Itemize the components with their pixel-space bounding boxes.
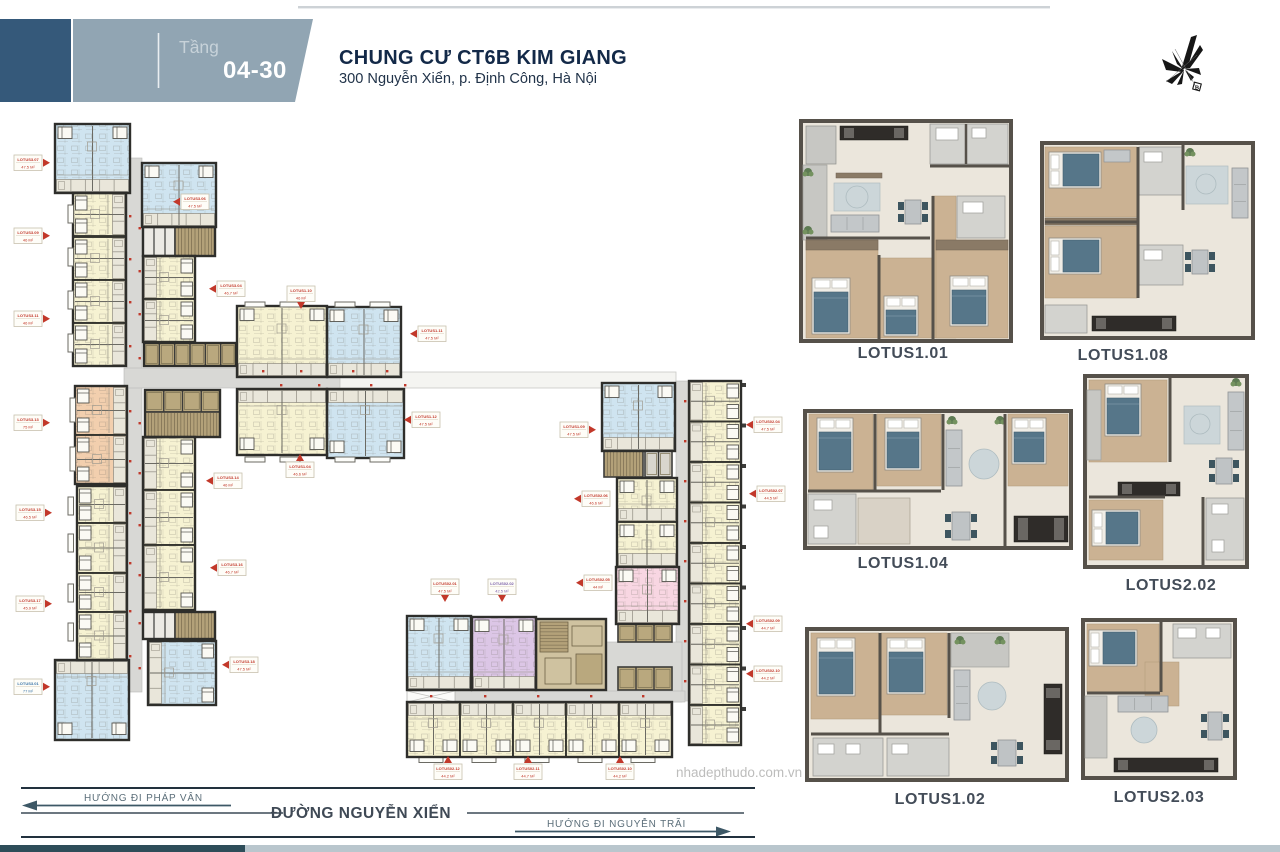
svg-text:LOTUS3.04: LOTUS3.04 (220, 283, 242, 288)
svg-text:LOTUS1.01: LOTUS1.01 (858, 345, 949, 362)
svg-text:LOTUS02.10: LOTUS02.10 (756, 668, 780, 673)
svg-text:47.5 M²: 47.5 M² (425, 335, 439, 340)
svg-text:47.5 M²: 47.5 M² (419, 421, 433, 426)
svg-text:47.5 M²: 47.5 M² (567, 431, 581, 436)
svg-text:44.2 M²: 44.2 M² (441, 773, 455, 778)
svg-text:46 M²: 46 M² (296, 295, 307, 300)
svg-text:LOTUS3.14: LOTUS3.14 (217, 475, 239, 480)
svg-text:LOTUS2.02: LOTUS2.02 (1126, 577, 1217, 594)
svg-text:LOTUS3.01: LOTUS3.01 (17, 681, 39, 686)
svg-text:LOTUS1.02: LOTUS1.02 (895, 791, 986, 808)
svg-text:46.6 M²: 46.6 M² (589, 500, 603, 505)
svg-text:LOTUS3.09: LOTUS3.09 (17, 230, 39, 235)
svg-text:47.5 M²: 47.5 M² (438, 588, 452, 593)
svg-text:nhadepthudo.com.vn: nhadepthudo.com.vn (676, 765, 802, 780)
svg-text:75 M²: 75 M² (23, 424, 34, 429)
svg-text:LOTUS02.04: LOTUS02.04 (756, 419, 780, 424)
svg-text:ĐƯỜNG NGUYỄN XIỂN: ĐƯỜNG NGUYỄN XIỂN (271, 804, 451, 822)
svg-text:HƯỚNG ĐI NGUYỄN TRÃI: HƯỚNG ĐI NGUYỄN TRÃI (547, 817, 686, 830)
svg-text:44.2 M²: 44.2 M² (613, 773, 627, 778)
svg-text:Tầng: Tầng (179, 37, 219, 57)
svg-text:B: B (1195, 85, 1199, 91)
svg-text:46.7 M²: 46.7 M² (225, 569, 239, 574)
svg-text:LOTUS02.06: LOTUS02.06 (584, 493, 608, 498)
svg-text:LOTUS02.02: LOTUS02.02 (490, 581, 514, 586)
svg-text:LOTUS3.07: LOTUS3.07 (17, 157, 39, 162)
svg-text:LOTUS02.07: LOTUS02.07 (759, 488, 783, 493)
svg-text:LOTUS02.01: LOTUS02.01 (433, 581, 457, 586)
svg-text:LOTUS2.03: LOTUS2.03 (1114, 789, 1205, 806)
svg-text:LOTUS02.12: LOTUS02.12 (436, 766, 460, 771)
svg-text:LOTUS1.12: LOTUS1.12 (415, 414, 437, 419)
svg-text:LOTUS3.17: LOTUS3.17 (19, 598, 41, 603)
svg-text:LOTUS1.09: LOTUS1.09 (563, 424, 585, 429)
svg-text:LOTUS3.11: LOTUS3.11 (17, 313, 39, 318)
svg-text:44.5 M²: 44.5 M² (764, 495, 778, 500)
svg-text:LOTUS02.05: LOTUS02.05 (586, 577, 610, 582)
svg-text:46.5 M²: 46.5 M² (23, 514, 37, 519)
svg-text:46 M²: 46 M² (23, 320, 34, 325)
svg-text:LOTUS1.08: LOTUS1.08 (1078, 347, 1169, 364)
svg-text:46 M²: 46 M² (23, 237, 34, 242)
svg-text:42.5 M²: 42.5 M² (495, 588, 509, 593)
svg-text:LOTUS1.04: LOTUS1.04 (289, 464, 311, 469)
svg-text:44 M²: 44 M² (593, 584, 604, 589)
svg-text:44.7 M²: 44.7 M² (761, 625, 775, 630)
svg-text:LOTUS3.06: LOTUS3.06 (184, 196, 206, 201)
svg-text:300 Nguyễn Xiển, p. Định Công,: 300 Nguyễn Xiển, p. Định Công, Hà Nội (339, 70, 597, 87)
svg-text:77 M²: 77 M² (23, 688, 34, 693)
svg-text:44.2 M²: 44.2 M² (761, 675, 775, 680)
svg-text:CHUNG CƯ CT6B KIM GIANG: CHUNG CƯ CT6B KIM GIANG (339, 47, 627, 69)
svg-text:47.5 M²: 47.5 M² (237, 666, 251, 671)
svg-text:LOTUS02.11: LOTUS02.11 (516, 766, 540, 771)
svg-text:47.5 M²: 47.5 M² (188, 203, 202, 208)
svg-text:LOTUS3.15: LOTUS3.15 (19, 507, 41, 512)
svg-text:47.5 M²: 47.5 M² (21, 164, 35, 169)
svg-text:LOTUS02.09: LOTUS02.09 (756, 618, 780, 623)
svg-text:LOTUS1.04: LOTUS1.04 (858, 555, 949, 572)
svg-text:45.9 M²: 45.9 M² (23, 605, 37, 610)
svg-text:LOTUS3.18: LOTUS3.18 (233, 659, 255, 664)
svg-text:LOTUS02.10: LOTUS02.10 (608, 766, 632, 771)
svg-text:04-30: 04-30 (223, 57, 287, 84)
svg-text:46 M²: 46 M² (223, 482, 234, 487)
svg-text:HƯỚNG ĐI PHÁP VÂN: HƯỚNG ĐI PHÁP VÂN (84, 791, 203, 804)
svg-text:47.5 M²: 47.5 M² (761, 426, 775, 431)
svg-text:LOTUS1.11: LOTUS1.11 (421, 328, 443, 333)
svg-text:LOTUS1.10: LOTUS1.10 (290, 288, 312, 293)
svg-text:LOTUS3.16: LOTUS3.16 (221, 562, 243, 567)
svg-text:46.7 M²: 46.7 M² (224, 290, 238, 295)
svg-text:44.7 M²: 44.7 M² (521, 773, 535, 778)
svg-text:46.6 M²: 46.6 M² (293, 471, 307, 476)
svg-text:LOTUS3.13: LOTUS3.13 (17, 417, 39, 422)
